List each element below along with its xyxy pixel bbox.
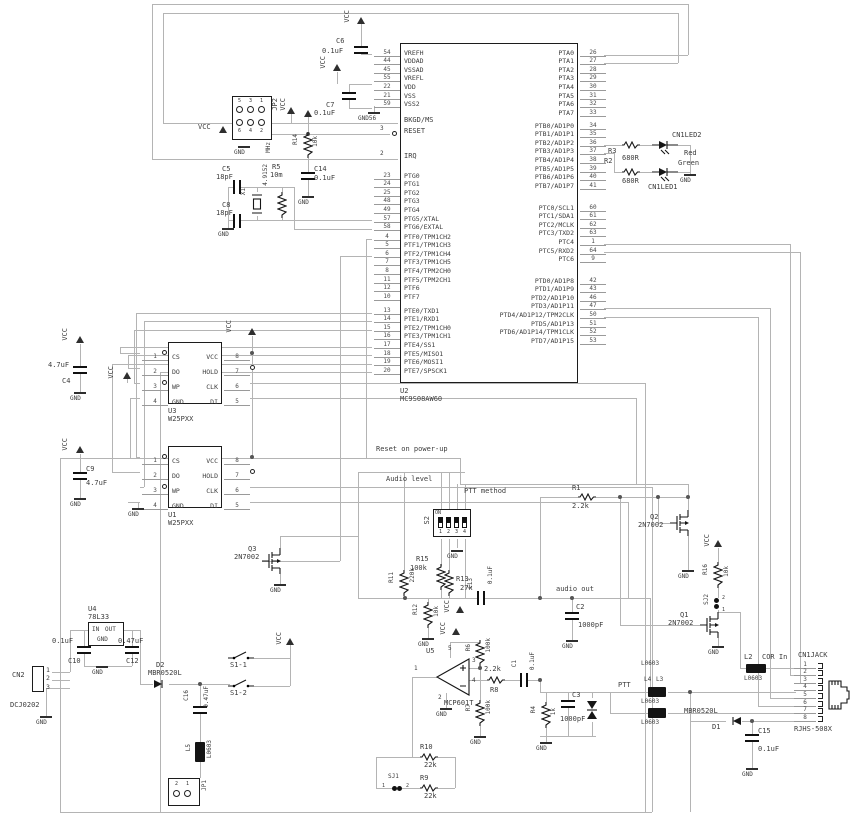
diode-d2 — [153, 679, 169, 689]
pin-number: 61 — [580, 213, 606, 220]
vcc-label: VCC — [62, 438, 69, 451]
pin-name: PTD6/AD1P14/TPM1CLK — [500, 329, 574, 336]
note-audio-out: audio out — [556, 586, 594, 593]
wire — [688, 4, 689, 55]
pin-number: 34 — [580, 123, 606, 130]
wire — [505, 680, 520, 681]
capacitor-c2 — [565, 612, 579, 620]
wire — [652, 487, 653, 812]
mhz-label: MHz — [266, 142, 272, 153]
gnd-symbol — [474, 736, 486, 738]
pin-name: HOLD — [202, 369, 218, 376]
jp2-pin — [236, 106, 243, 113]
rj45-jack-icon — [828, 680, 850, 710]
wire — [200, 684, 201, 706]
wire — [46, 688, 47, 716]
pin-number: 38 — [580, 157, 606, 164]
pin-name: HOLD — [202, 473, 218, 480]
wire — [152, 4, 688, 5]
resistor-r9 — [420, 784, 438, 792]
crystal-x1 — [251, 192, 263, 216]
pin-row: 6PTF2/TPM1CH4 — [346, 249, 400, 258]
pin-name: WP — [172, 384, 180, 391]
gnd56-label: GND56 — [358, 116, 376, 122]
d1-ref: D1 — [712, 724, 720, 731]
jp2-pin — [258, 119, 265, 126]
pin-name: DO — [172, 473, 180, 480]
pin-number: 5 — [374, 242, 400, 249]
u5-pin1: 1 — [414, 666, 418, 672]
vcc-arrow-icon — [286, 638, 294, 645]
pin-row: 63PTC3/TXD2 — [578, 229, 632, 238]
pin-row: 8 — [794, 714, 848, 722]
pin-name: PTF1/TPM1CH3 — [404, 242, 451, 249]
pin-number: 7 — [374, 259, 400, 266]
r8-value: 2.2k — [484, 666, 501, 673]
c9-value: 4.7uF — [86, 480, 107, 487]
capacitor-c3 — [561, 700, 575, 708]
wp-bubble — [162, 380, 167, 385]
wire — [254, 658, 290, 659]
r11-value: 220k — [410, 568, 416, 582]
pin-name: PTG5/XTAL — [404, 216, 439, 223]
pin-row: 16PTE3/TPM1CH1 — [346, 332, 400, 341]
l3-value: L0603 — [641, 720, 659, 726]
gnd-symbol — [132, 508, 144, 510]
pin-number: 50 — [580, 312, 606, 319]
jack-part: RJHS-508X — [794, 726, 832, 733]
pin-name: PTF3/TPM1CH5 — [404, 259, 451, 266]
vcc-arrow-icon — [76, 336, 84, 343]
c5-ref: C5 — [222, 166, 230, 173]
wire — [337, 72, 338, 84]
hold-bubble — [250, 469, 255, 474]
vcc-label: VCC — [226, 320, 233, 333]
u5-pin4: 4 — [472, 678, 476, 684]
pin-name: CLK — [206, 488, 218, 495]
wire — [80, 344, 81, 366]
pin-row: 8VCC — [222, 346, 276, 361]
gnd-label: GND — [36, 720, 47, 726]
q3-value: 2N7002 — [234, 554, 259, 561]
wire — [80, 480, 81, 498]
wire — [460, 458, 461, 484]
pin-number: 8 — [224, 354, 250, 361]
r5-ref: R5 — [272, 164, 280, 171]
pin-number: 1 — [142, 354, 168, 361]
r5-value: 10m — [270, 172, 283, 179]
wire — [546, 728, 547, 736]
gnd-label: GND — [742, 772, 753, 778]
pin-row: 24PTG1 — [346, 180, 400, 189]
wire — [758, 317, 759, 706]
pin-number: 25 — [374, 190, 400, 197]
cn2-connector — [32, 666, 44, 692]
pin-row: 6CLK — [222, 480, 276, 495]
pin-row: 1 — [794, 661, 848, 669]
schematic-canvas: U2 MC9S08AW60 54VREFH44VDDAD45VSSAD55VRE… — [0, 0, 856, 831]
l5-value: L0603 — [207, 740, 213, 758]
mcu-ptd-pins: 42PTD0/AD1P843PTD1/AD1P946PTD2/AD1P1047P… — [578, 276, 632, 345]
r10-ref: R10 — [420, 744, 433, 751]
c12-value: 0.47uF — [118, 638, 143, 645]
c16-ref: C16 — [184, 690, 190, 701]
r2-ref: R2 — [604, 158, 612, 165]
d2-value: MBR0520L — [148, 670, 182, 677]
note-ptt-method: PTT method — [464, 488, 506, 495]
wire — [718, 588, 719, 598]
pin-name: PTF2/TPM1CH4 — [404, 251, 451, 258]
jp2-pin-number: 4 — [247, 129, 254, 134]
sj2-ref: SJ2 — [704, 594, 710, 605]
u3-right-pins: 8VCC7HOLD6CLK5DI — [222, 346, 276, 406]
gnd-symbol — [274, 584, 286, 586]
wire — [766, 668, 796, 669]
pin-number: 63 — [580, 230, 606, 237]
pin-number: 7 — [224, 473, 250, 480]
jp2-pin-number: 6 — [236, 129, 243, 134]
pin-name: VREFH — [404, 50, 424, 57]
reset-bubble — [392, 131, 397, 136]
inductor-l5 — [195, 742, 205, 762]
pin-name: PTG0 — [404, 173, 420, 180]
pin-name: CS — [172, 354, 180, 361]
q2-ref: Q2 — [650, 514, 658, 521]
gnd-symbol — [368, 112, 380, 114]
vcc-label: VCC — [320, 56, 327, 69]
mcu-bkgd-pin: BKGD/MS — [404, 117, 434, 124]
wire — [455, 757, 456, 788]
pin-row: 55VREFL — [346, 74, 400, 83]
pin-name: PTC2/MCLK — [539, 222, 574, 229]
u1-ref: U1 — [168, 512, 176, 519]
pin-name: PTF4/TPM2CH0 — [404, 268, 451, 275]
pin-number: 44 — [374, 58, 400, 65]
sj2-pin2: 2 — [722, 596, 725, 601]
wire — [540, 692, 652, 693]
pin-row: 20PTE7/SPSCK1 — [346, 366, 400, 375]
pin-name: PTG2 — [404, 190, 420, 197]
r12-value: 10k — [434, 606, 440, 617]
jack-ref: CN1JACK — [798, 652, 828, 659]
c7-ref: C7 — [326, 102, 334, 109]
gnd-symbol — [74, 392, 86, 394]
pin-number: 14 — [374, 316, 400, 323]
pin-row: 33PTA7 — [578, 108, 632, 117]
pin-number: 21 — [374, 93, 400, 100]
wire — [800, 252, 801, 683]
pin-number: 35 — [580, 131, 606, 138]
cs-bubble — [162, 350, 167, 355]
pin-name: VCC — [206, 458, 218, 465]
gnd-label: GND — [234, 150, 245, 156]
pin-row: 4PTF0/TPM1CH2 — [346, 232, 400, 241]
pin-row: 14PTE1/RXD1 — [346, 315, 400, 324]
pin-number: 12 — [374, 285, 400, 292]
wire — [294, 187, 295, 230]
pin-row: 18PTE5/MISO1 — [346, 349, 400, 358]
wire — [441, 590, 442, 598]
pin-name: DO — [172, 369, 180, 376]
jp2-pin-number: 3 — [247, 99, 254, 104]
pin-row: 61PTC1/SDA1 — [578, 212, 632, 221]
r16-value: 10k — [724, 566, 730, 577]
pin-name: PTA6 — [558, 101, 574, 108]
c2-value: 1000pF — [578, 622, 603, 629]
wire — [441, 539, 442, 566]
pin-row: 32PTA6 — [578, 100, 632, 109]
wire — [678, 172, 690, 173]
wire — [540, 736, 596, 737]
wire — [308, 158, 309, 172]
pin-name: PTF0/TPM1CH2 — [404, 234, 451, 241]
pin-number: 10 — [374, 294, 400, 301]
pin-name: PTE4/SS1 — [404, 342, 435, 349]
inductor-l3 — [648, 708, 666, 718]
resistor-r8 — [487, 676, 505, 684]
pin-name: PTC4 — [558, 239, 574, 246]
pin-name: VREFL — [404, 75, 424, 82]
wire — [604, 252, 800, 253]
pin-row: 58PTG6/EXTAL — [346, 223, 400, 232]
pin-name: PTE2/TPM1CH0 — [404, 325, 451, 332]
pin-name: PTC5/RXD2 — [539, 248, 574, 255]
pin-name: PTF7 — [404, 294, 420, 301]
pin-number: 2 — [142, 473, 168, 480]
u1-right-pins: 8VCC7HOLD6CLK5DI — [222, 450, 276, 510]
r7-ref: R7 — [466, 704, 472, 711]
note-audio-level: Audio level — [386, 476, 432, 483]
r9-ref: R9 — [420, 775, 428, 782]
cn2-part: DCJ0202 — [10, 702, 40, 709]
mcu-ptf-pins: 4PTF0/TPM1CH25PTF1/TPM1CH36PTF2/TPM1CH47… — [346, 232, 400, 301]
pin-name: DI — [210, 399, 218, 406]
mcu-reset-pin: RESET — [404, 128, 425, 135]
r14-ref: R14 — [293, 134, 299, 145]
u5-ref: U5 — [426, 648, 434, 655]
pin-number: 8 — [794, 715, 816, 722]
mcu-part: MC9S08AW60 — [400, 396, 442, 403]
jp2-pin-number: 1 — [258, 99, 265, 104]
resistor-r11 — [399, 570, 409, 596]
pin-row: 7HOLD — [222, 465, 276, 480]
wire — [480, 668, 481, 700]
pin-name: PTB7/AD1P7 — [535, 183, 574, 190]
l4-value: L0603 — [641, 661, 659, 667]
l4-ref: L4 — [644, 677, 651, 683]
pin-number: 57 — [374, 216, 400, 223]
wire — [152, 159, 398, 160]
wire — [130, 398, 131, 458]
pin-number: 62 — [580, 222, 606, 229]
wire — [636, 398, 637, 484]
led1-color: Green — [678, 160, 699, 167]
pin-name: PTG4 — [404, 207, 420, 214]
wire — [438, 757, 455, 758]
capacitor-c13 — [477, 591, 485, 605]
pin-row: 19PTE6/MOSI1 — [346, 358, 400, 367]
u4-ref: U4 — [88, 606, 96, 613]
jp2-pin — [247, 106, 254, 113]
pin-number: 59 — [374, 101, 400, 108]
pin-name: PTE7/SPSCK1 — [404, 368, 447, 375]
pin-row: 45VSSAD — [346, 65, 400, 74]
pin-name: VSSAD — [404, 67, 424, 74]
wire — [250, 398, 636, 399]
resistor-r10 — [420, 753, 438, 761]
u4-in: IN — [92, 627, 99, 633]
capacitor-c12 — [125, 646, 139, 654]
dip-number: 3 — [454, 530, 459, 535]
wire — [402, 788, 420, 789]
pin-number: 6 — [224, 384, 250, 391]
wire — [257, 216, 258, 221]
pin-number: 53 — [580, 338, 606, 345]
switch-s1-2 — [228, 678, 254, 688]
pin-number: 22 — [374, 84, 400, 91]
pin-row: 23PTG0 — [346, 171, 400, 180]
wire — [112, 364, 113, 472]
q1-ref: Q1 — [680, 612, 688, 619]
jp1-ref: JP1 — [202, 780, 208, 791]
gnd-label: GND — [436, 712, 447, 718]
pin-number: 36 — [580, 140, 606, 147]
cn2-pins: 123 — [44, 665, 98, 691]
gnd-symbol — [440, 708, 452, 710]
pin-number: 9 — [580, 256, 606, 263]
pin-number: 13 — [374, 308, 400, 315]
pin-name: PTG6/EXTAL — [404, 224, 443, 231]
pin-number: 3 — [142, 384, 168, 391]
gnd-label: GND — [92, 670, 103, 676]
wire — [163, 13, 678, 14]
pin-name: VCC — [206, 354, 218, 361]
pin-name: PTA1 — [558, 58, 574, 65]
mcu-reset-pin-number: 3 — [380, 126, 384, 132]
pin-number: 3 — [46, 684, 50, 691]
s1-1-ref: S1-1 — [230, 662, 247, 669]
pin-name: PTE6/MOSI1 — [404, 359, 443, 366]
pin-number: 30 — [580, 84, 606, 91]
pin-name: DI — [210, 503, 218, 510]
vcc-arrow-icon — [304, 110, 312, 117]
wire — [770, 698, 796, 699]
vcc-label: VCC — [198, 124, 211, 131]
u5-pin2: 2 — [438, 695, 442, 701]
pin-name: WP — [172, 488, 180, 495]
pin-name: PTC3/TXD2 — [539, 230, 574, 237]
junction-dot — [656, 495, 660, 499]
junction-dot — [688, 690, 692, 694]
gnd-symbol — [451, 550, 463, 552]
r1-value: 2.2k — [572, 503, 589, 510]
c3-ref: C3 — [572, 692, 580, 699]
pin-row: 1PTC4 — [578, 237, 632, 246]
resistor-r7 — [475, 700, 485, 726]
wire — [718, 548, 719, 562]
wire — [485, 598, 650, 599]
pin-row: 5DI — [222, 495, 276, 510]
sj2-pad — [714, 604, 719, 609]
resistor-r1 — [578, 493, 596, 501]
pin-name: PTD5/AD1P13 — [531, 321, 574, 328]
pin-number: 27 — [580, 58, 606, 65]
pin-number: 46 — [580, 295, 606, 302]
dip-slot — [438, 517, 443, 528]
c7-value: 0.1uF — [314, 110, 335, 117]
l2-value: L0603 — [744, 676, 762, 682]
jack-pad — [818, 716, 823, 722]
dip-number: 2 — [446, 530, 451, 535]
wire — [640, 172, 652, 173]
c3-value: 1000pF — [560, 716, 585, 723]
note-cor-in: COR In — [762, 654, 787, 661]
resistor-r5 — [277, 192, 287, 218]
pin-number: 31 — [580, 93, 606, 100]
pin-row: 35PTB1/AD1P1 — [578, 130, 632, 139]
u4-gnd: GND — [97, 637, 108, 643]
pin-row: 47PTD3/AD1P11 — [578, 302, 632, 311]
capacitor-c10 — [77, 646, 91, 654]
s2-ref: S2 — [424, 516, 431, 524]
pin-number: 3 — [142, 488, 168, 495]
c15-value: 0.1uF — [758, 746, 779, 753]
vcc-label: VCC — [704, 534, 711, 547]
pin-number: 19 — [374, 359, 400, 366]
r1-ref: R1 — [572, 485, 580, 492]
dip-number: 1 — [438, 530, 443, 535]
u1-left-pins: 1CS2DO3WP4GND — [114, 450, 168, 510]
pin-row: 8PTF4/TPM2CH0 — [346, 266, 400, 275]
wire — [718, 638, 719, 646]
pin-name: PTE1/RXD1 — [404, 316, 439, 323]
pin-row: 42PTD0/AD1P8 — [578, 276, 632, 285]
wire — [200, 762, 201, 778]
pin-number: 8 — [374, 268, 400, 275]
pin-name: PTD3/AD1P11 — [531, 303, 574, 310]
jp2-ref: JP2 — [272, 98, 279, 111]
wire — [60, 458, 61, 812]
gnd-symbol — [422, 638, 434, 640]
pin-number: 45 — [374, 67, 400, 74]
pin-number: 64 — [580, 248, 606, 255]
note-ptt: PTT — [618, 682, 631, 689]
pin-row: 3WP — [114, 480, 168, 495]
pin-number: 40 — [580, 174, 606, 181]
inductor-l4 — [648, 687, 666, 697]
wire — [200, 714, 201, 742]
dip-slot — [462, 517, 467, 528]
wire — [770, 308, 771, 698]
wire — [546, 692, 547, 702]
dip-slot — [446, 517, 451, 528]
r10-value: 22k — [424, 762, 437, 769]
d1-value: MBR0520L — [684, 708, 718, 715]
pin-number: 7 — [224, 369, 250, 376]
pin-name: PTC0/SCL1 — [539, 205, 574, 212]
mcu-ptg-pins: 23PTG024PTG125PTG248PTG349PTG457PTG5/XTA… — [346, 171, 400, 231]
pin-name: PTA7 — [558, 110, 574, 117]
l3-ref: L3 — [656, 677, 663, 683]
transistor-q1 — [700, 612, 724, 638]
pin-number: 4 — [374, 234, 400, 241]
junction-dot — [478, 666, 482, 670]
pin-name: PTD7/AD1P15 — [531, 338, 574, 345]
capacitor-c8 — [233, 214, 241, 228]
gnd-symbol — [302, 196, 314, 198]
pin-number: 37 — [580, 148, 606, 155]
cs-bubble — [162, 454, 167, 459]
